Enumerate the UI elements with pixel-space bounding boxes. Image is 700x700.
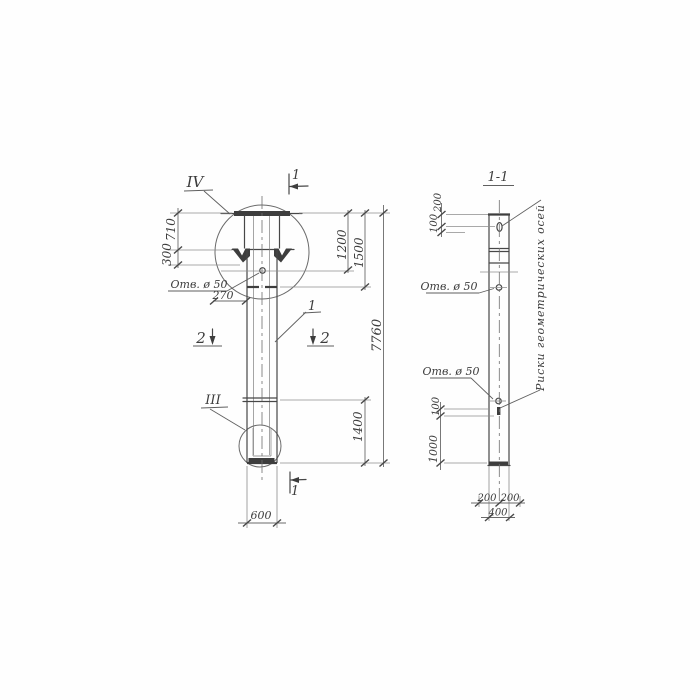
dim-300: 300 (160, 243, 174, 266)
dim-200-bottom-right: 200 (499, 493, 520, 504)
cut-label-bottom: 1 (291, 484, 299, 499)
drawing-sheet: IV 1 710 300 Отв. ø 50 270 1200 1500 776… (0, 0, 700, 700)
dim-270: 270 (212, 289, 234, 302)
section-1-1-view: 1-1 (421, 170, 547, 521)
part-label: 1 (308, 299, 316, 314)
dim-1000: 1000 (427, 435, 440, 463)
section-body (480, 200, 518, 505)
dim-200-top: 200 (433, 192, 444, 213)
pile-elevation-view: IV 1 710 300 Отв. ø 50 270 1200 1500 776… (160, 168, 390, 528)
dim-1400: 1400 (351, 411, 365, 442)
dim-1500: 1500 (352, 237, 366, 268)
section-title: 1-1 (488, 170, 509, 185)
dim-100-mid: 100 (431, 396, 442, 416)
hole-label-upper: Отв. ø 50 (421, 280, 478, 293)
cut-label-top: 1 (292, 168, 300, 183)
dim-710: 710 (164, 218, 178, 241)
dim-600: 600 (251, 509, 272, 522)
dim-200-bottom-left: 200 (476, 493, 497, 504)
detail-mark-top: IV (186, 173, 206, 191)
dim-7760: 7760 (370, 319, 385, 352)
section2-arrow-left (210, 336, 216, 345)
upper-hole (260, 268, 266, 274)
section2-arrow-right (310, 336, 316, 345)
dim-100-top: 100 (429, 213, 440, 233)
cut-arrow-top (290, 184, 299, 190)
detail-mark-bottom: III (204, 393, 221, 408)
section-dimensions (437, 203, 526, 521)
drawing-canvas: IV 1 710 300 Отв. ø 50 270 1200 1500 776… (0, 0, 700, 700)
dim-400: 400 (487, 508, 508, 519)
left-view-marks (168, 174, 334, 493)
cut-arrow-bottom (291, 477, 300, 483)
section-mark-2-left: 2 (195, 329, 206, 347)
axis-riska-mark (497, 407, 500, 415)
hole-label-lower: Отв. ø 50 (423, 365, 480, 378)
axes-note: Риски геометрических осей (534, 205, 547, 392)
dim-1200: 1200 (335, 229, 349, 260)
section-mark-2-right: 2 (319, 329, 330, 347)
